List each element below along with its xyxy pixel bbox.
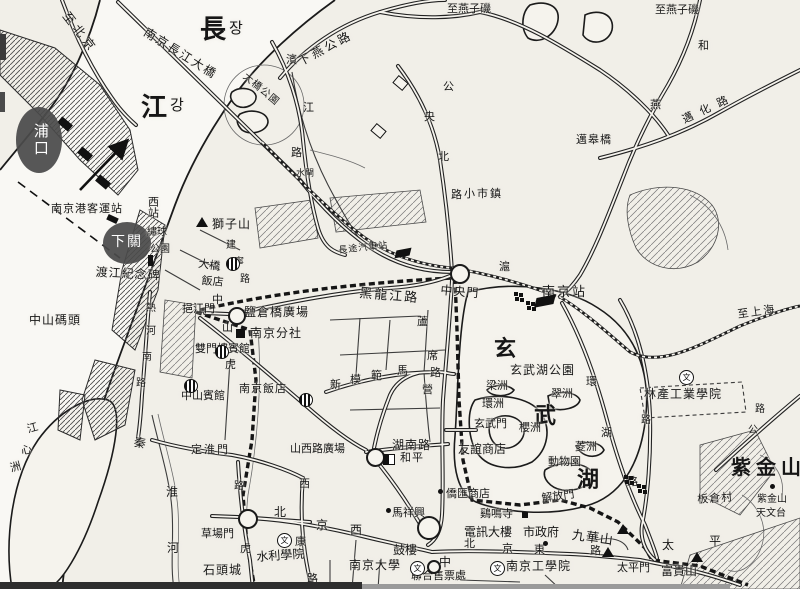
label-xinmofan-char-xin: 新 [330, 380, 341, 392]
label-forestry-college: 林產工業學院 [644, 388, 722, 401]
observatory-dot [770, 484, 775, 489]
qiaohui-store-dot [438, 489, 443, 494]
label-qinhuai-char-huai: 淮 [166, 486, 178, 499]
label-nanjing-institute-tech: 南京工學院 [506, 560, 571, 573]
label-huju-char-lu: 路 [234, 482, 244, 493]
city-government-dot [543, 541, 548, 546]
label-rehe-south-char-he: 河 [146, 327, 156, 338]
label-zhongshan-north-char-zhong: 中 [212, 295, 223, 307]
label-huju-char-hu-south: 虎 [240, 544, 251, 556]
label-jimingsi: 鷄鳴寺 [480, 509, 513, 521]
label-cuizhou: 翠洲 [551, 389, 573, 401]
label-yangtze-char-jiang: 江 [141, 94, 167, 121]
label-xuanwu-char-xuan: 玄 [494, 337, 516, 360]
shuangmenlou-hotel-icon [215, 345, 229, 359]
label-xuanwumen: 玄武門 [474, 419, 507, 431]
label-zhongyang-north-char-gong: 公 [443, 82, 454, 94]
label-zhongyangmen: 中央門 [440, 284, 480, 300]
institute-tech-icon: 文 [490, 561, 505, 576]
label-east-road-char-lu: 路 [641, 416, 651, 427]
label-shizishan: 獅子山 [212, 218, 251, 231]
label-huju-char-hu-north: 虎 [225, 360, 236, 372]
label-xinmofan-char-ma: 馬 [397, 366, 408, 378]
label-zijinshan: 紫金山 [731, 458, 800, 479]
label-nanjing-branch: 南京分社 [250, 327, 302, 340]
shizishan-peak-icon [196, 217, 208, 227]
scan-smudge-left-1 [0, 34, 6, 60]
scan-edge-bottom-right [362, 584, 730, 589]
label-ne-road-char-lu: 路 [755, 405, 765, 416]
east-cluster-icon-1 [624, 475, 628, 479]
label-zhongshan-wharf: 中山碼頭 [29, 314, 81, 327]
label-taipingmen: 太平門 [617, 563, 650, 575]
taipingmen-peak-icon [617, 524, 629, 534]
shuili-college-icon: 文 [277, 533, 292, 548]
monument-icon [148, 255, 153, 266]
label-binjiang-road-char-lu: 路 [291, 148, 302, 160]
label-rehe-south-char-lu: 路 [136, 379, 146, 390]
label-beijing-east-char-bei: 北 [464, 539, 475, 551]
label-observatory-1: 紫金山 [757, 495, 787, 506]
nanjing-map: 至北京南京長江大橋長장江강浦口大橋公園下燕公路至燕子磯至燕子磯和燕邁化路邁皋橋濱… [0, 0, 800, 589]
nanjing-hotel-icon [299, 393, 313, 407]
forestry-college-icon: 文 [679, 370, 694, 385]
label-heyan-road-char-he: 和 [698, 41, 709, 53]
label-korean-jang: 장 [229, 22, 243, 38]
label-xikang-char-xi: 西 [299, 479, 310, 491]
label-binjiang-road-char-bin: 濱 [286, 55, 297, 67]
label-fuguishan: 富貴山 [661, 565, 697, 578]
label-rehe-south-char-nan: 南 [142, 353, 152, 364]
label-luxiying-char-ying: 營 [422, 385, 433, 397]
label-qinhuai-char-qin: 秦 [133, 436, 147, 450]
label-lingzhou: 菱洲 [575, 442, 597, 454]
label-beijing-west-char-xi: 西 [350, 524, 362, 537]
label-hu-char: 滬 [499, 262, 510, 274]
label-rehe-south-char-re: 熱 [146, 304, 156, 315]
label-huanzhou: 環洲 [482, 399, 504, 411]
label-luxiying-char-xi: 席 [427, 351, 438, 363]
label-xinmofan-char-fan: 範 [371, 371, 382, 383]
label-xiuqiu-park-1: 繡球 [147, 228, 167, 239]
label-korean-gang: 강 [170, 99, 184, 115]
label-city-government: 市政府 [523, 526, 559, 539]
label-taiping-char-tai: 太 [662, 539, 674, 552]
scan-edge-bottom-left [0, 582, 362, 589]
label-caochangmen: 草場門 [201, 529, 234, 541]
label-dinghuaimen: 定淮門 [191, 445, 230, 457]
zhongyangmen-circle [450, 264, 470, 284]
label-xiaguan-badge: 下關 [103, 222, 151, 264]
zhongshan-road-circle [427, 560, 441, 574]
label-xinmofan-char-mo: 模 [350, 375, 361, 387]
label-shuizha: 水閘 [296, 169, 314, 178]
label-xiuqiu-park-2: 公園 [150, 245, 170, 256]
label-xinmofan-char-lu: 路 [430, 368, 441, 380]
label-shitoucheng: 石頭城 [203, 564, 242, 577]
nanjing-university-icon: 文 [410, 561, 425, 576]
label-heping-gate: 和平 [400, 453, 424, 465]
label-hunan-road: 湖南路 [392, 439, 431, 452]
label-dianxun-building: 電訊大樓 [464, 526, 512, 539]
branch-office-icon [236, 329, 245, 338]
label-yijiangmen: 挹江門 [182, 304, 215, 316]
label-west-station: 西站 [146, 196, 158, 218]
label-zhongyang-north-char-lu: 路 [451, 190, 462, 202]
label-pukou-badge: 浦口 [16, 107, 62, 173]
label-nanjing-hotel: 南京飯店 [239, 384, 287, 396]
label-yingzhou: 櫻洲 [519, 423, 541, 435]
jiuhuashan-peak-icon [602, 547, 614, 557]
rail-yard-icon-1 [514, 292, 518, 296]
gulou-circle [417, 516, 441, 540]
label-to-yanziji-west: 至燕子磯 [447, 4, 491, 16]
label-jianning-char-lu: 路 [240, 275, 250, 286]
jimingsi-icon [522, 512, 528, 518]
yancangqiao-circle [228, 307, 246, 325]
label-ne-road-char-gong: 公 [748, 426, 758, 437]
label-daqiao-hotel-2: 飯店 [201, 276, 224, 289]
label-taiping-char-ping: 平 [709, 535, 721, 548]
label-observatory-2: 天文台 [756, 509, 786, 520]
label-qinhuai-char-he: 河 [167, 542, 179, 555]
label-beijing-west-char-jing: 京 [316, 519, 328, 532]
label-luxiying-char-lu: 蘆 [417, 317, 428, 329]
label-huanhu-char-hu: 湖 [601, 428, 612, 440]
heping-gate-icon [383, 454, 395, 465]
label-gulou: 鼓樓 [393, 544, 417, 557]
label-yancangqiao-square: 鹽倉橋廣場 [244, 306, 309, 319]
label-to-yanziji-east: 至燕子磯 [655, 5, 699, 17]
label-xuanwu-char-hu: 湖 [577, 468, 599, 491]
zhongshan-hotel-icon [184, 379, 198, 393]
label-liangzhou: 梁洲 [486, 381, 508, 393]
label-maxiangxing: 馬祥興 [392, 508, 425, 520]
label-beijing-east-char-jing: 京 [502, 544, 513, 556]
label-beijing-west-char-bei: 北 [274, 506, 286, 519]
label-friendship-store: 友誼商店 [458, 443, 506, 456]
daqiao-hotel-icon [226, 257, 240, 271]
maxiangxing-dot [386, 508, 391, 513]
label-binjiang-road-char-jiang: 江 [303, 103, 314, 115]
label-port-terminal: 南京港客運站 [51, 204, 123, 216]
rail-yard-icon-2 [526, 301, 530, 305]
label-shanxilu-square: 山西路廣場 [290, 444, 345, 456]
label-beijing-east-char-lu: 路 [590, 546, 601, 558]
label-yangtze-char-chang: 長 [200, 16, 226, 43]
label-zoo: 動物園 [548, 457, 581, 469]
label-xiaoshizhen: 小市鎮 [464, 189, 503, 201]
caochangmen-circle [238, 509, 258, 529]
label-zhongyang-north-char-yang: 央 [424, 112, 435, 124]
label-heyan-road-char-yan: 燕 [650, 100, 661, 112]
label-beijing-east-char-dong: 東 [534, 545, 545, 557]
label-xuanwu-lake-park: 玄武湖公園 [510, 364, 575, 377]
label-zhongshan-hotel: 中山賓館 [181, 391, 225, 403]
east-cluster-icon-2 [637, 484, 641, 488]
label-nanjing-university: 南京大學 [349, 559, 401, 572]
label-zhongshan-north-char-shan: 山 [222, 323, 233, 335]
fuguishan-peak-icon [691, 552, 703, 562]
label-zhongyang-north-char-bei: 北 [438, 152, 449, 164]
label-maigaoqiao: 邁皋橋 [576, 135, 612, 147]
label-qiaohui-store: 僑匯商店 [446, 489, 490, 501]
label-huanhu-char-huan: 環 [586, 377, 597, 389]
scan-smudge-left-2 [0, 92, 5, 112]
label-jianning-char-jian: 建 [226, 241, 236, 252]
